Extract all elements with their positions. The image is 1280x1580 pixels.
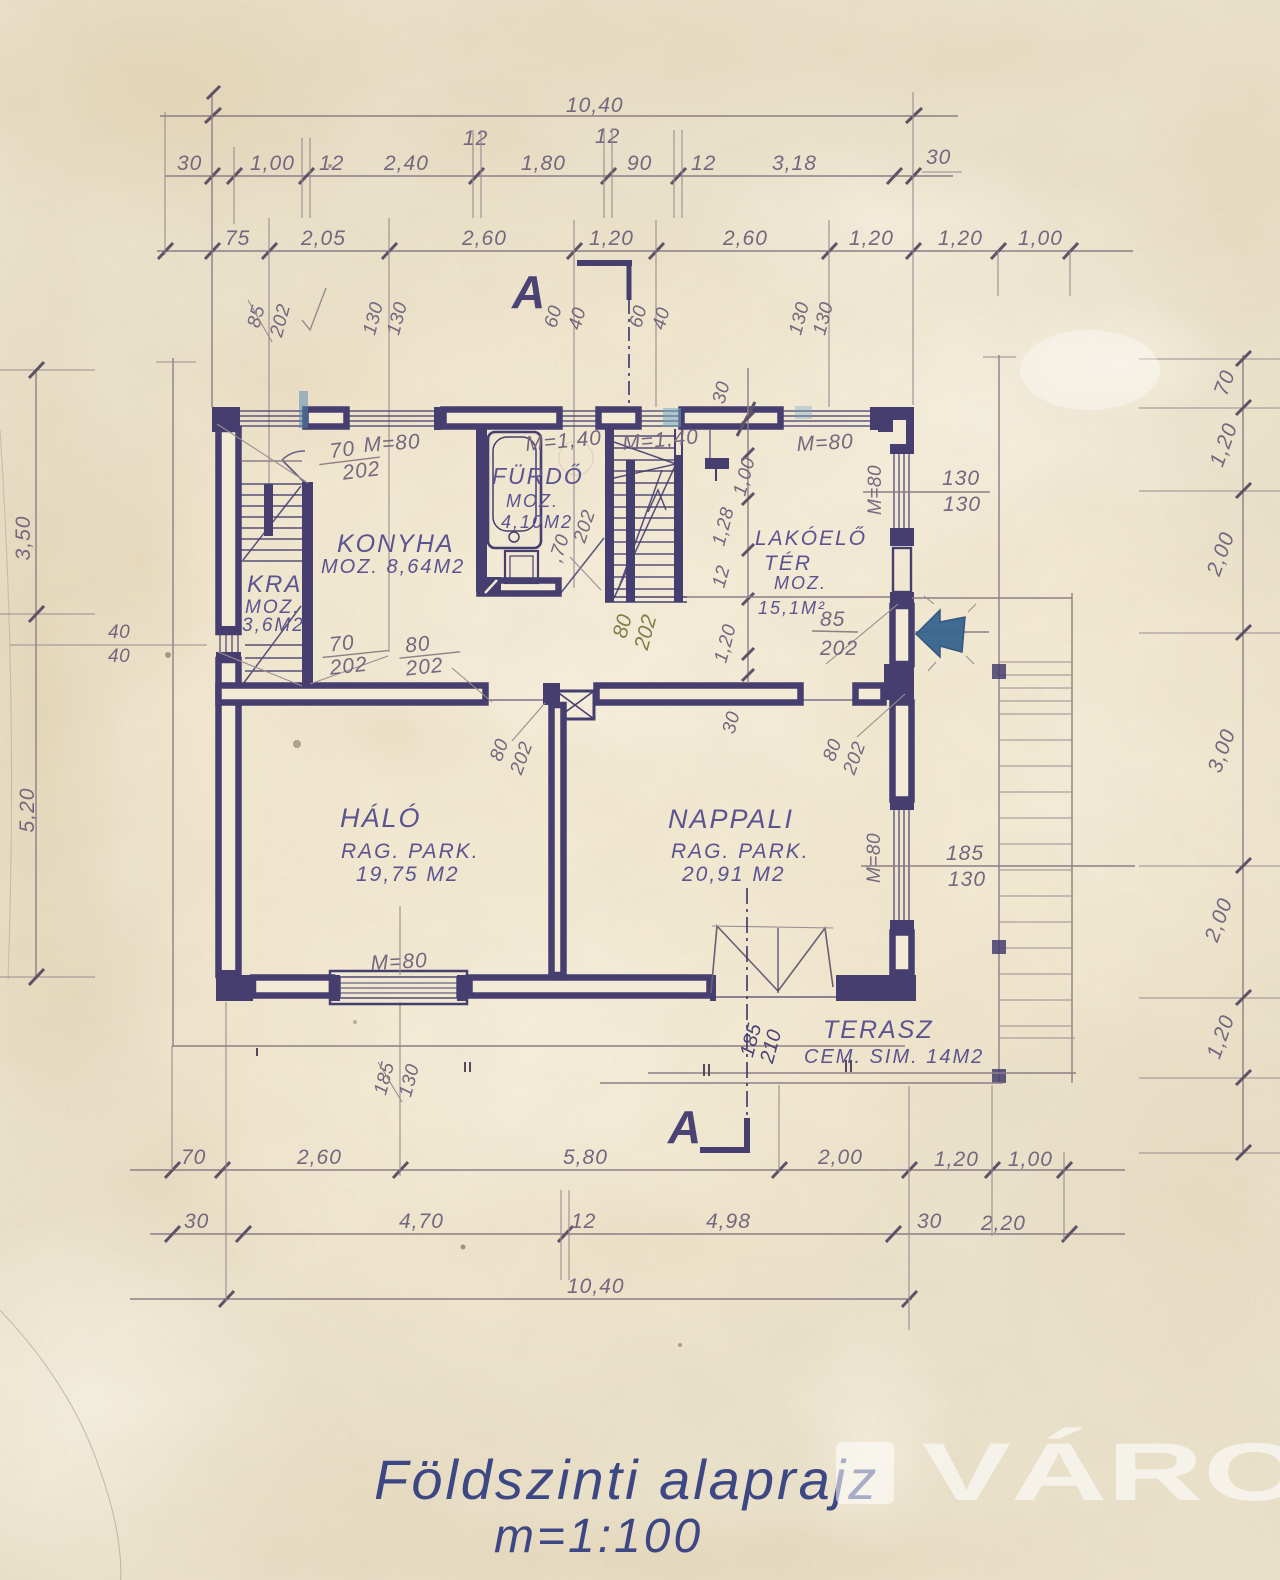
svg-text:1,20: 1,20 (849, 227, 894, 250)
svg-text:MOZ.: MOZ. (774, 573, 827, 593)
svg-text:30: 30 (926, 146, 951, 169)
svg-text:4,98: 4,98 (706, 1210, 751, 1233)
svg-text:130: 130 (942, 467, 980, 490)
svg-text:12: 12 (595, 125, 620, 148)
svg-text:85: 85 (820, 608, 845, 631)
svg-text:70: 70 (181, 1146, 206, 1169)
svg-text:M=80: M=80 (363, 430, 422, 457)
svg-text:TERASZ: TERASZ (823, 1016, 934, 1044)
svg-text:5,20: 5,20 (16, 788, 39, 833)
svg-text:202: 202 (328, 653, 369, 680)
svg-text:MOZ. 8,64M2: MOZ. 8,64M2 (321, 556, 465, 578)
svg-text:m=1:100: m=1:100 (494, 1510, 703, 1563)
svg-text:2,05: 2,05 (300, 227, 346, 250)
svg-text:15,1M²: 15,1M² (758, 598, 826, 618)
svg-text:30: 30 (184, 1210, 209, 1233)
svg-text:4,70: 4,70 (399, 1210, 444, 1233)
svg-text:202: 202 (340, 457, 382, 485)
svg-text:70: 70 (328, 437, 356, 463)
svg-text:1,20: 1,20 (934, 1148, 979, 1171)
svg-text:Földszinti alaprajz: Földszinti alaprajz (374, 1448, 879, 1511)
svg-text:M=80: M=80 (370, 949, 428, 975)
svg-text:NAPPALI: NAPPALI (668, 804, 794, 834)
svg-text:1,00: 1,00 (1018, 227, 1063, 250)
svg-text:75: 75 (225, 227, 250, 250)
svg-text:12: 12 (463, 127, 488, 150)
svg-text:M=80: M=80 (864, 833, 885, 883)
svg-text:2,40: 2,40 (383, 152, 429, 175)
svg-text:A: A (667, 1101, 701, 1153)
svg-text:30: 30 (917, 1210, 942, 1233)
svg-text:1,00: 1,00 (250, 152, 295, 175)
svg-text:10,40: 10,40 (566, 94, 624, 117)
svg-text:HÁLÓ: HÁLÓ (340, 802, 422, 833)
svg-text:12: 12 (319, 152, 344, 175)
svg-text:RAG. PARK.: RAG. PARK. (671, 840, 810, 863)
svg-text:1,80: 1,80 (521, 152, 566, 175)
svg-text:19,75 M2: 19,75 M2 (356, 863, 460, 886)
svg-text:3,50: 3,50 (12, 516, 35, 561)
svg-text:3,18: 3,18 (772, 152, 817, 175)
svg-text:40: 40 (108, 622, 130, 643)
svg-text:90: 90 (627, 152, 652, 175)
svg-text:2,00: 2,00 (817, 1146, 863, 1169)
svg-text:40: 40 (108, 646, 130, 667)
svg-text:2,20: 2,20 (980, 1212, 1026, 1235)
svg-text:3,6M2: 3,6M2 (242, 615, 305, 636)
svg-text:130: 130 (943, 493, 981, 516)
svg-text:M=80: M=80 (796, 430, 854, 456)
svg-text:FÜRDŐ: FÜRDŐ (492, 463, 584, 489)
svg-text:202: 202 (403, 654, 444, 681)
svg-text:4,10M2: 4,10M2 (501, 512, 573, 532)
svg-text:30: 30 (177, 152, 202, 175)
svg-text:A: A (511, 266, 545, 318)
svg-text:KRA: KRA (247, 571, 302, 598)
svg-text:20,91 M2: 20,91 M2 (681, 863, 786, 886)
svg-text:1,00: 1,00 (1008, 1148, 1053, 1171)
svg-text:1,20: 1,20 (938, 227, 983, 250)
svg-text:2,60: 2,60 (296, 1146, 342, 1169)
svg-text:130: 130 (948, 868, 986, 891)
svg-text:M=80: M=80 (865, 465, 886, 515)
svg-text:1,20: 1,20 (589, 227, 634, 250)
svg-text:80: 80 (404, 632, 432, 658)
svg-text:TÉR: TÉR (764, 552, 812, 575)
svg-text:MOZ.: MOZ. (506, 491, 559, 511)
svg-text:2,60: 2,60 (461, 227, 507, 250)
svg-text:KONYHA: KONYHA (337, 530, 455, 558)
svg-text:LAKÓELŐ: LAKÓELŐ (755, 527, 867, 550)
svg-text:12: 12 (571, 1210, 596, 1233)
svg-text:202: 202 (819, 637, 858, 660)
svg-text:5,80: 5,80 (563, 1146, 608, 1169)
svg-text:2,60: 2,60 (722, 227, 768, 250)
svg-text:RAG. PARK.: RAG. PARK. (341, 840, 480, 863)
svg-text:CEM. SIM. 14M2: CEM. SIM. 14M2 (804, 1046, 984, 1068)
svg-text:10,40: 10,40 (567, 1275, 625, 1298)
svg-text:12: 12 (691, 152, 716, 175)
svg-text:185: 185 (946, 842, 984, 865)
svg-text:VÁRO: VÁRO (922, 1427, 1280, 1518)
svg-text:70: 70 (328, 631, 356, 657)
